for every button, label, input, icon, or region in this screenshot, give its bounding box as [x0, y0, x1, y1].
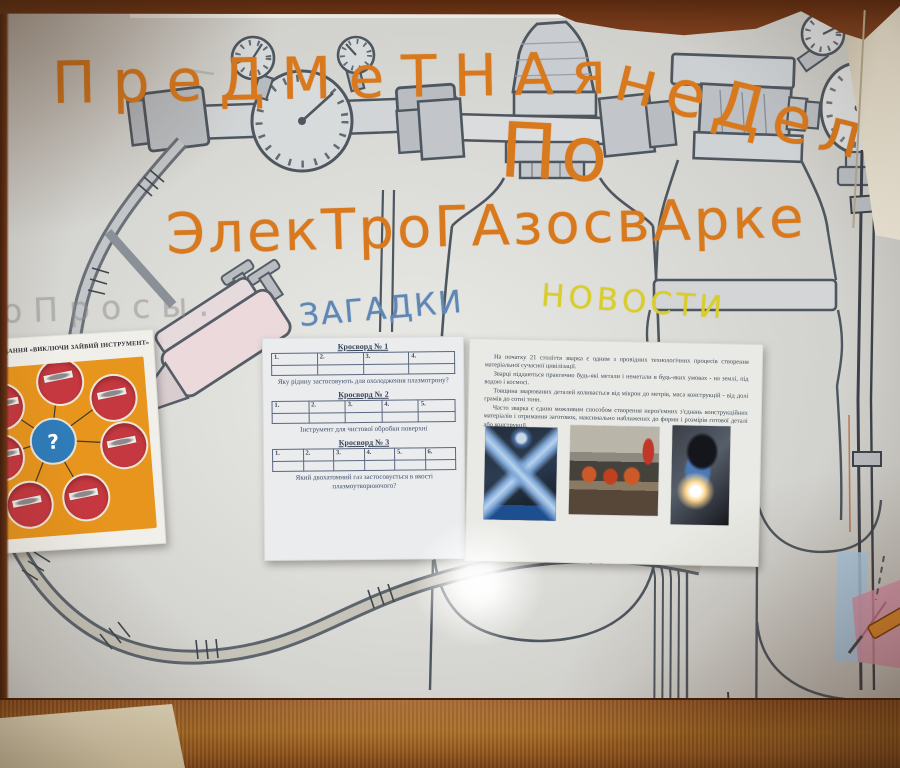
task-diagram-panel: ? [0, 356, 157, 539]
crossword-1-grid: 1. 2. 3. 4. [271, 351, 455, 376]
wall-left-strip [0, 0, 9, 768]
grid-cell: 5. [395, 448, 426, 460]
grid-cell: 2. [317, 353, 363, 365]
crossword-2-grid: 1. 2. 3. 4. 5. [271, 399, 455, 424]
title-word-po: По [498, 105, 614, 200]
photo-welding-workshop [569, 425, 660, 516]
task-sheet: ЗАВДАННЯ «ВИКЛЮЧИ ЗАЙВИЙ ІНСТРУМЕНТ» [0, 329, 166, 554]
crease-line [849, 415, 850, 532]
grid-cell: 2. [309, 401, 346, 413]
camera-flash-glare [393, 500, 563, 665]
grid-cell: 4. [364, 448, 395, 460]
grid-cell: 3. [363, 352, 409, 364]
grid-cell: 4. [382, 400, 419, 412]
grid-cell: 6. [425, 448, 456, 460]
crossword-2-question: Інструмент для чистової обробки поверхні [274, 424, 454, 435]
title-word-predmetnaya: ПреДМеТНАя [51, 39, 623, 117]
photo-of-wall-poster: ПреДМеТНАя неДеля По ЭлекТроГАзосвАрке о… [0, 0, 900, 768]
grid-cell: 3. [334, 449, 365, 461]
mini-welder-drawing [834, 552, 900, 668]
photo-welder-at-work [671, 425, 731, 525]
grid-cell: 4. [409, 352, 455, 364]
crossword-3-question: Який двохатомний газ застосовується в як… [274, 472, 454, 492]
grid-cell: 3. [345, 400, 382, 412]
grid-cell: 1. [271, 353, 317, 365]
crossword-1-question: Яку рідину застосовують для охолодження … [273, 376, 453, 387]
question-mark: ? [47, 429, 60, 454]
grid-cell: 1. [273, 449, 304, 461]
grid-cell: 1. [272, 401, 309, 413]
grid-cell: 2. [303, 449, 334, 461]
grid-cell: 5. [418, 400, 455, 412]
crossword-3-grid: 1. 2. 3. 4. 5. 6. [272, 447, 456, 472]
task-sheet-title: ЗАВДАННЯ «ВИКЛЮЧИ ЗАЙВИЙ ІНСТРУМЕНТ» [0, 339, 151, 356]
section-label-polls: оПросы. [1, 284, 220, 331]
